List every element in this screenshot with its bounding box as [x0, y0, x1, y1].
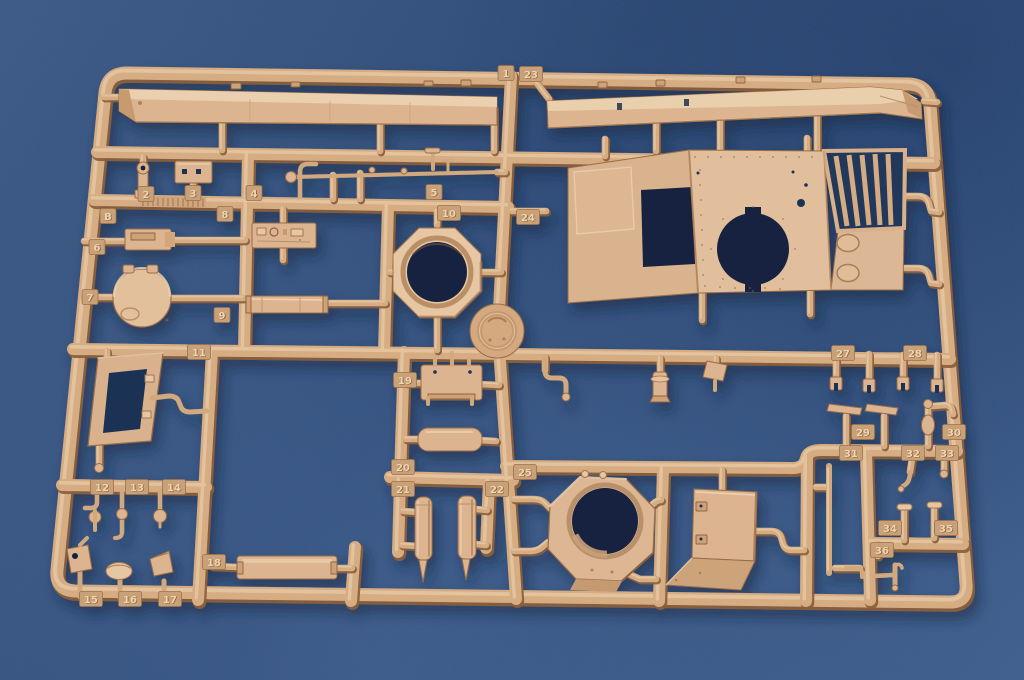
part-number: 16 [123, 595, 137, 606]
part-number-tag: 1010 [438, 206, 461, 221]
part-number-tag: 1616 [119, 592, 142, 607]
part-24-superstructure-panel [568, 150, 905, 303]
part-number: 32 [906, 449, 920, 460]
part-31-rod [828, 466, 829, 573]
part-number-tag: 1414 [163, 480, 186, 495]
part-number-tag: 1212 [91, 480, 114, 495]
part-number-tag: 2727 [832, 346, 855, 361]
part-number-tag: 3131 [840, 446, 863, 461]
part-number: 5 [431, 188, 438, 199]
part-number-tag: 2222 [486, 482, 509, 497]
part-number-tag: 1313 [126, 480, 149, 495]
part-number-tag: 3030 [943, 425, 966, 440]
part-number-tag: 11 [498, 66, 514, 81]
part-number-tag: 2828 [904, 346, 927, 361]
part-number-tag: 1717 [159, 592, 182, 607]
part-number-tag: 1818 [203, 555, 226, 570]
part-6-hull-box [125, 229, 175, 250]
part-number-tag: 2929 [852, 425, 875, 440]
part-number: 17 [163, 595, 177, 606]
part-number: 8 [222, 210, 229, 221]
part-number-tag: 22 [138, 187, 154, 202]
part-number: 25 [518, 468, 532, 479]
part-20-pill-box [418, 428, 482, 451]
part-8-detail-block [252, 223, 316, 248]
part-number-tag: 2424 [517, 210, 540, 225]
part-number: 4 [251, 189, 258, 200]
part-18-stowage-box [237, 556, 337, 579]
part-number: 18 [207, 558, 221, 569]
part-35-capped-pin [927, 502, 942, 508]
part-10-turret-ring [393, 228, 481, 317]
part-number-tag: 1515 [80, 592, 103, 607]
part-number: 11 [192, 348, 206, 359]
part-number-tag: BB [100, 209, 116, 224]
runner-logo-disc [470, 304, 524, 358]
part-number: 1 [503, 69, 510, 80]
part-number-tag: 3434 [879, 521, 902, 536]
part-30-bottle-pin [922, 400, 935, 436]
part-number-tag: 88 [217, 207, 233, 222]
part-number-tag: 3535 [935, 521, 958, 536]
part-number: 35 [939, 524, 953, 535]
part-number: 20 [396, 463, 410, 474]
part-number-tag: 3232 [902, 446, 925, 461]
part-number: 19 [398, 376, 412, 387]
part-number: 3 [190, 189, 197, 200]
part-number: 10 [442, 209, 456, 220]
part-number-tag: 66 [89, 240, 105, 255]
part-flanged-cylinder [650, 372, 670, 402]
photo-background: 1122334455667788991010111112121313141415… [0, 0, 1024, 680]
part-number: 28 [908, 349, 922, 360]
part-number-tag: 44 [246, 186, 262, 201]
part-number: B [104, 212, 112, 223]
part-34-capped-pin [897, 504, 912, 510]
part-number: 7 [87, 293, 94, 304]
engine-grille [824, 150, 905, 231]
part-number: 9 [219, 311, 226, 322]
part-number: 30 [947, 428, 961, 439]
part-number: 27 [836, 349, 850, 360]
part-number-tag: 3333 [936, 446, 959, 461]
part-number: 36 [875, 546, 889, 557]
part-number: 33 [940, 449, 954, 460]
part-3-box [175, 161, 212, 183]
part-number: 6 [94, 243, 101, 254]
part-number: 34 [883, 524, 897, 535]
part-33-pin [940, 470, 948, 478]
part-number-tag: 2323 [520, 67, 543, 82]
part-number: 29 [856, 428, 870, 439]
part-number-tag: 55 [426, 185, 442, 200]
part-number-tag: 2525 [514, 465, 537, 480]
part-number-tag: 2020 [392, 460, 415, 475]
part-number: 24 [521, 213, 535, 224]
part-number: 12 [95, 483, 109, 494]
part-number: 13 [130, 483, 144, 494]
part-number-tag: 3636 [871, 543, 894, 558]
part-number-tag: 1919 [394, 373, 417, 388]
part-number-tag: 2121 [392, 482, 415, 497]
part-number: 14 [167, 483, 181, 494]
part-number: 22 [490, 485, 504, 496]
part-number-tag: 77 [82, 290, 98, 305]
sprue-photo: 1122334455667788991010111112121313141415… [0, 0, 1024, 680]
part-9-long-box [246, 296, 328, 313]
part-number: 31 [844, 449, 858, 460]
part-number: 15 [84, 595, 98, 606]
part-number: 2 [143, 190, 150, 201]
part-number-tag: 1111 [188, 345, 211, 360]
part-number: 23 [524, 70, 538, 81]
part-number-tag: 99 [214, 308, 230, 323]
part-number: 21 [396, 485, 410, 496]
part-number-tag: 33 [185, 186, 201, 201]
